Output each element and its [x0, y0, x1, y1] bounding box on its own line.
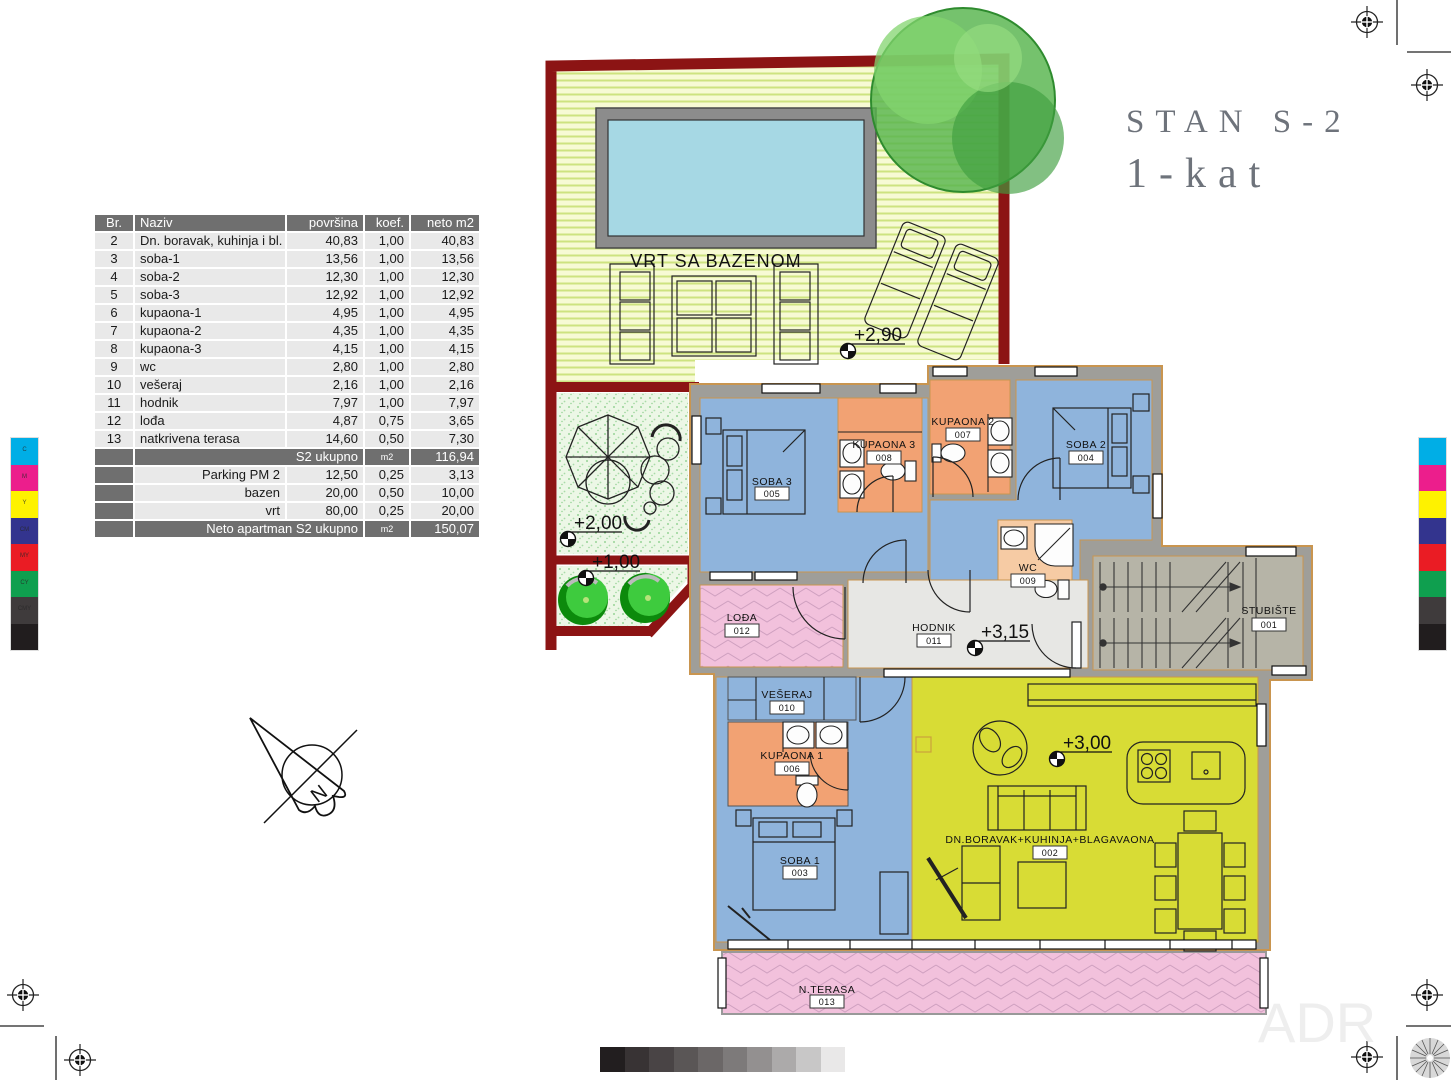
tree: [871, 8, 1064, 194]
gray-swatch: [625, 1047, 650, 1072]
color-swatch: [1419, 624, 1446, 651]
table-row: 8 kupaona-3 4,15 1,00 4,15: [95, 341, 479, 357]
table-row: 13 natkrivena terasa 14,60 0,50 7,30: [95, 431, 479, 447]
color-swatch: MY: [11, 544, 38, 571]
color-swatch: [1419, 438, 1446, 465]
cell-koef: 1,00: [365, 359, 409, 375]
cell-neto: 13,56: [411, 251, 479, 267]
cell-koef: 0,25: [365, 503, 409, 519]
table-row: 12 lođa 4,87 0,75 3,65: [95, 413, 479, 429]
room-label: KUPAONA 1: [760, 750, 823, 762]
room-number: 008: [876, 453, 893, 463]
cell-naziv: soba-2: [135, 269, 285, 285]
room-number: 006: [784, 764, 801, 774]
cell-naziv: kupaona-3: [135, 341, 285, 357]
cell-neto: 10,00: [411, 485, 479, 501]
cell-br: 2: [95, 233, 133, 249]
subtotal-unit: m2: [365, 449, 409, 465]
north-arrow: N: [250, 718, 357, 823]
grayscale-calibration-bar: [600, 1047, 845, 1072]
room-number: 004: [1078, 453, 1095, 463]
elevation-label: +1,00: [592, 552, 640, 573]
room-number: 012: [734, 626, 751, 636]
room-number: 001: [1261, 620, 1278, 630]
cell-neto: 3,13: [411, 467, 479, 483]
cell-neto: 12,92: [411, 287, 479, 303]
room-number: 002: [1042, 848, 1059, 858]
table-header-row: Br. Naziv površina koef. neto m2: [95, 215, 479, 231]
cell-povrsina: 7,97: [287, 395, 363, 411]
color-swatch: C: [11, 438, 38, 465]
room-label: KUPAONA 2: [931, 416, 994, 428]
cell-neto: 7,97: [411, 395, 479, 411]
table-row: 2 Dn. boravak, kuhinja i bl. 40,83 1,00 …: [95, 233, 479, 249]
cell-koef: 1,00: [365, 287, 409, 303]
room-label: VEŠERAJ: [761, 688, 812, 701]
room-label: HODNIK: [912, 622, 956, 634]
room-terasa-floor: [722, 952, 1266, 1014]
table-extra-row: vrt 80,00 0,25 20,00: [95, 503, 479, 519]
color-swatch: [1419, 491, 1446, 518]
gray-swatch: [649, 1047, 674, 1072]
cell-povrsina: 12,50: [287, 467, 363, 483]
col-header: neto m2: [411, 215, 479, 231]
cell-br: 10: [95, 377, 133, 393]
cell-koef: 1,00: [365, 305, 409, 321]
cell-povrsina: 20,00: [287, 485, 363, 501]
cell-koef: 0,50: [365, 431, 409, 447]
table-extra-row: Parking PM 2 12,50 0,25 3,13: [95, 467, 479, 483]
elevation-label: +3,15: [981, 622, 1029, 643]
subtotal-value: 116,94: [411, 449, 479, 465]
cell-naziv: natkrivena terasa: [135, 431, 285, 447]
elevation-label: +2,00: [574, 513, 622, 534]
cell-br: 12: [95, 413, 133, 429]
cell-povrsina: 2,16: [287, 377, 363, 393]
table-row: 7 kupaona-2 4,35 1,00 4,35: [95, 323, 479, 339]
color-swatch: CY: [11, 571, 38, 598]
subtotal-label: S2 ukupno: [135, 449, 363, 465]
cell-neto: 2,80: [411, 359, 479, 375]
cell-neto: 4,95: [411, 305, 479, 321]
cell-povrsina: 4,15: [287, 341, 363, 357]
table-row: 5 soba-3 12,92 1,00 12,92: [95, 287, 479, 303]
room-living-floor: [912, 677, 1258, 942]
room-label: LOĐA: [727, 612, 758, 624]
cell-br: 7: [95, 323, 133, 339]
cell-naziv: kupaona-2: [135, 323, 285, 339]
cell-naziv: soba-1: [135, 251, 285, 267]
elevation-label: +3,00: [1063, 733, 1111, 754]
cell-naziv: wc: [135, 359, 285, 375]
plan-sheet: +2,90 +2,00 +1,00 +3,15 +3,00 SOBA 3 005…: [0, 0, 1451, 1080]
bush: [620, 573, 670, 623]
garden-label: VRT SA BAZENOM: [630, 251, 801, 271]
cell-povrsina: 12,92: [287, 287, 363, 303]
cell-naziv: hodnik: [135, 395, 285, 411]
room-label: SOBA 1: [780, 855, 820, 867]
cell-koef: 0,50: [365, 485, 409, 501]
color-swatch: [1419, 571, 1446, 598]
room-label: SOBA 2: [1066, 439, 1106, 451]
cell-povrsina: 4,35: [287, 323, 363, 339]
cell-neto: 20,00: [411, 503, 479, 519]
col-header: površina: [287, 215, 363, 231]
col-header: koef.: [365, 215, 409, 231]
starburst-mark: [1410, 1038, 1450, 1078]
room-number: 007: [955, 430, 972, 440]
north-label: N: [307, 781, 332, 807]
cell-naziv: kupaona-1: [135, 305, 285, 321]
cell-neto: 4,35: [411, 323, 479, 339]
cell-povrsina: 2,80: [287, 359, 363, 375]
cell-br: 13: [95, 431, 133, 447]
total-label: Neto apartman S2 ukupno: [135, 521, 363, 537]
room-number: 010: [779, 703, 796, 713]
room-label: WC: [1019, 562, 1038, 574]
cell-koef: 0,25: [365, 467, 409, 483]
elevation-label: +2,90: [854, 325, 902, 346]
color-swatch: [1419, 597, 1446, 624]
col-header: Br.: [95, 215, 133, 231]
gray-swatch: [821, 1047, 846, 1072]
table-row: 6 kupaona-1 4,95 1,00 4,95: [95, 305, 479, 321]
gray-swatch: [674, 1047, 699, 1072]
room-label: N.TERASA: [799, 984, 856, 996]
floor-title: 1-kat: [1126, 150, 1352, 198]
color-swatch: [1419, 518, 1446, 545]
cell-neto: 2,16: [411, 377, 479, 393]
table-row: 4 soba-2 12,30 1,00 12,30: [95, 269, 479, 285]
gray-swatch: [772, 1047, 797, 1072]
cell-koef: 0,75: [365, 413, 409, 429]
room-label: DN.BORAVAK+KUHINJA+BLAGAVAONA: [945, 834, 1154, 846]
cell-neto: 7,30: [411, 431, 479, 447]
color-swatch: [1419, 544, 1446, 571]
table-total-row: Neto apartman S2 ukupno m2 150,07: [95, 521, 479, 537]
cell-koef: 1,00: [365, 251, 409, 267]
cell-naziv: bazen: [135, 485, 285, 501]
cell-povrsina: 4,87: [287, 413, 363, 429]
color-calibration-bar-left: C M Y CM MY CY CMY: [10, 437, 39, 651]
cell-povrsina: 4,95: [287, 305, 363, 321]
table-row: 3 soba-1 13,56 1,00 13,56: [95, 251, 479, 267]
room-label: KUPAONA 3: [852, 439, 915, 451]
color-swatch: [1419, 465, 1446, 492]
cell-povrsina: 40,83: [287, 233, 363, 249]
cell-povrsina: 12,30: [287, 269, 363, 285]
cell-koef: 1,00: [365, 323, 409, 339]
gray-swatch: [698, 1047, 723, 1072]
table-extra-row: bazen 20,00 0,50 10,00: [95, 485, 479, 501]
cell-neto: 4,15: [411, 341, 479, 357]
table-subtotal-row: S2 ukupno m2 116,94: [95, 449, 479, 465]
cell-naziv: lođa: [135, 413, 285, 429]
cell-povrsina: 80,00: [287, 503, 363, 519]
cell-naziv: Dn. boravak, kuhinja i bl.: [135, 233, 285, 249]
cell-koef: 1,00: [365, 341, 409, 357]
swimming-pool: [596, 108, 876, 248]
col-header: Naziv: [135, 215, 285, 231]
gray-swatch: [600, 1047, 625, 1072]
cell-br: 9: [95, 359, 133, 375]
color-swatch: CMY: [11, 597, 38, 624]
cell-naziv: soba-3: [135, 287, 285, 303]
area-table: Br. Naziv površina koef. neto m2 2 Dn. b…: [95, 215, 479, 539]
cell-naziv: vešeraj: [135, 377, 285, 393]
cell-br: 11: [95, 395, 133, 411]
cell-neto: 3,65: [411, 413, 479, 429]
room-lodja-floor: [700, 585, 843, 667]
sheet-title: STAN S-2 1-kat: [1126, 104, 1352, 198]
cell-povrsina: 13,56: [287, 251, 363, 267]
watermark: ADR: [1258, 991, 1376, 1054]
color-swatch: M: [11, 465, 38, 492]
table-row: 9 wc 2,80 1,00 2,80: [95, 359, 479, 375]
cell-koef: 1,00: [365, 377, 409, 393]
gray-swatch: [747, 1047, 772, 1072]
room-number: 011: [926, 636, 942, 646]
color-swatch: Y: [11, 491, 38, 518]
gray-swatch: [796, 1047, 821, 1072]
room-label: STUBIŠTE: [1241, 604, 1296, 617]
total-value: 150,07: [411, 521, 479, 537]
cell-br: 8: [95, 341, 133, 357]
cell-naziv: vrt: [135, 503, 285, 519]
room-label: SOBA 3: [752, 476, 792, 488]
cell-neto: 12,30: [411, 269, 479, 285]
room-number: 003: [792, 868, 809, 878]
cell-naziv: Parking PM 2: [135, 467, 285, 483]
apartment-title: STAN S-2: [1126, 104, 1352, 141]
gray-swatch: [723, 1047, 748, 1072]
color-swatch: CM: [11, 518, 38, 545]
room-number: 009: [1020, 576, 1037, 586]
cell-br: 4: [95, 269, 133, 285]
room-number: 013: [819, 997, 836, 1007]
cell-koef: 1,00: [365, 233, 409, 249]
cell-br: 3: [95, 251, 133, 267]
total-unit: m2: [365, 521, 409, 537]
color-swatch: [11, 624, 38, 651]
cell-br: 5: [95, 287, 133, 303]
table-row: 11 hodnik 7,97 1,00 7,97: [95, 395, 479, 411]
cell-koef: 1,00: [365, 395, 409, 411]
cell-povrsina: 14,60: [287, 431, 363, 447]
room-number: 005: [764, 489, 781, 499]
table-row: 10 vešeraj 2,16 1,00 2,16: [95, 377, 479, 393]
cell-neto: 40,83: [411, 233, 479, 249]
cell-koef: 1,00: [365, 269, 409, 285]
cell-br: 6: [95, 305, 133, 321]
color-calibration-bar-right: [1418, 437, 1447, 651]
